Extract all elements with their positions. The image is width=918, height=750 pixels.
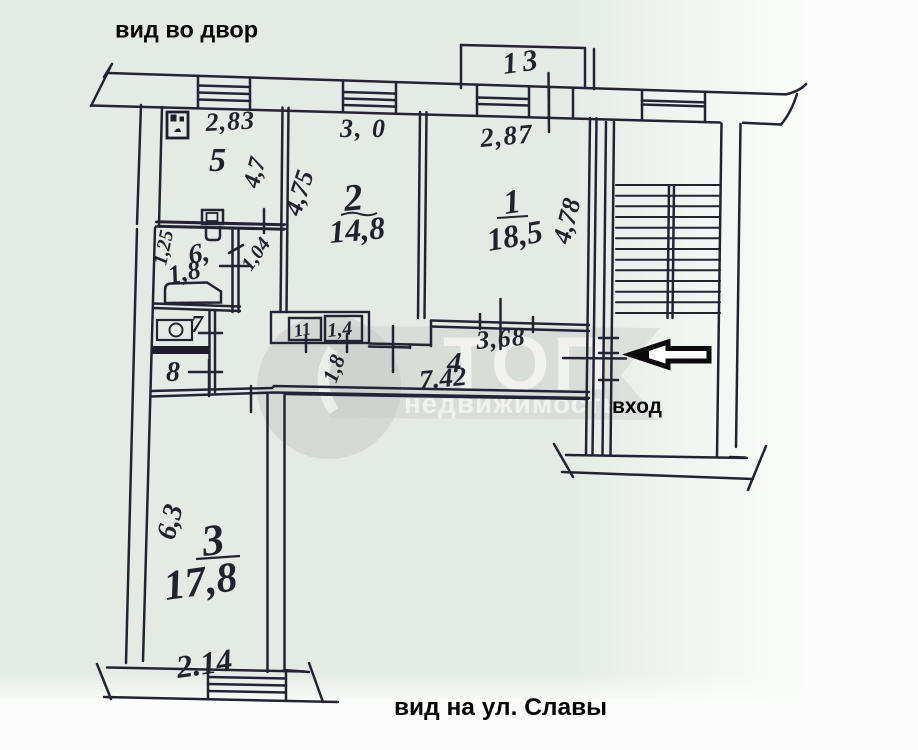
svg-text:2,83: 2,83 <box>204 105 256 137</box>
svg-text:1,4: 1,4 <box>326 317 353 341</box>
svg-text:2,87: 2,87 <box>478 118 535 153</box>
svg-text:14,8: 14,8 <box>327 209 386 250</box>
svg-text:3, 0: 3, 0 <box>339 114 387 143</box>
svg-text:3,68: 3,68 <box>474 322 527 355</box>
svg-text:вид во двор: вид во двор <box>115 17 258 43</box>
svg-text:7.42: 7.42 <box>418 361 468 395</box>
svg-text:11: 11 <box>292 318 312 341</box>
svg-text:5: 5 <box>209 142 226 179</box>
svg-text:8: 8 <box>166 357 180 388</box>
svg-text:вид на ул. Славы: вид на ул. Славы <box>394 694 607 721</box>
svg-text:вход: вход <box>612 395 662 418</box>
svg-text:13: 13 <box>500 43 544 81</box>
svg-text:7: 7 <box>191 312 204 338</box>
